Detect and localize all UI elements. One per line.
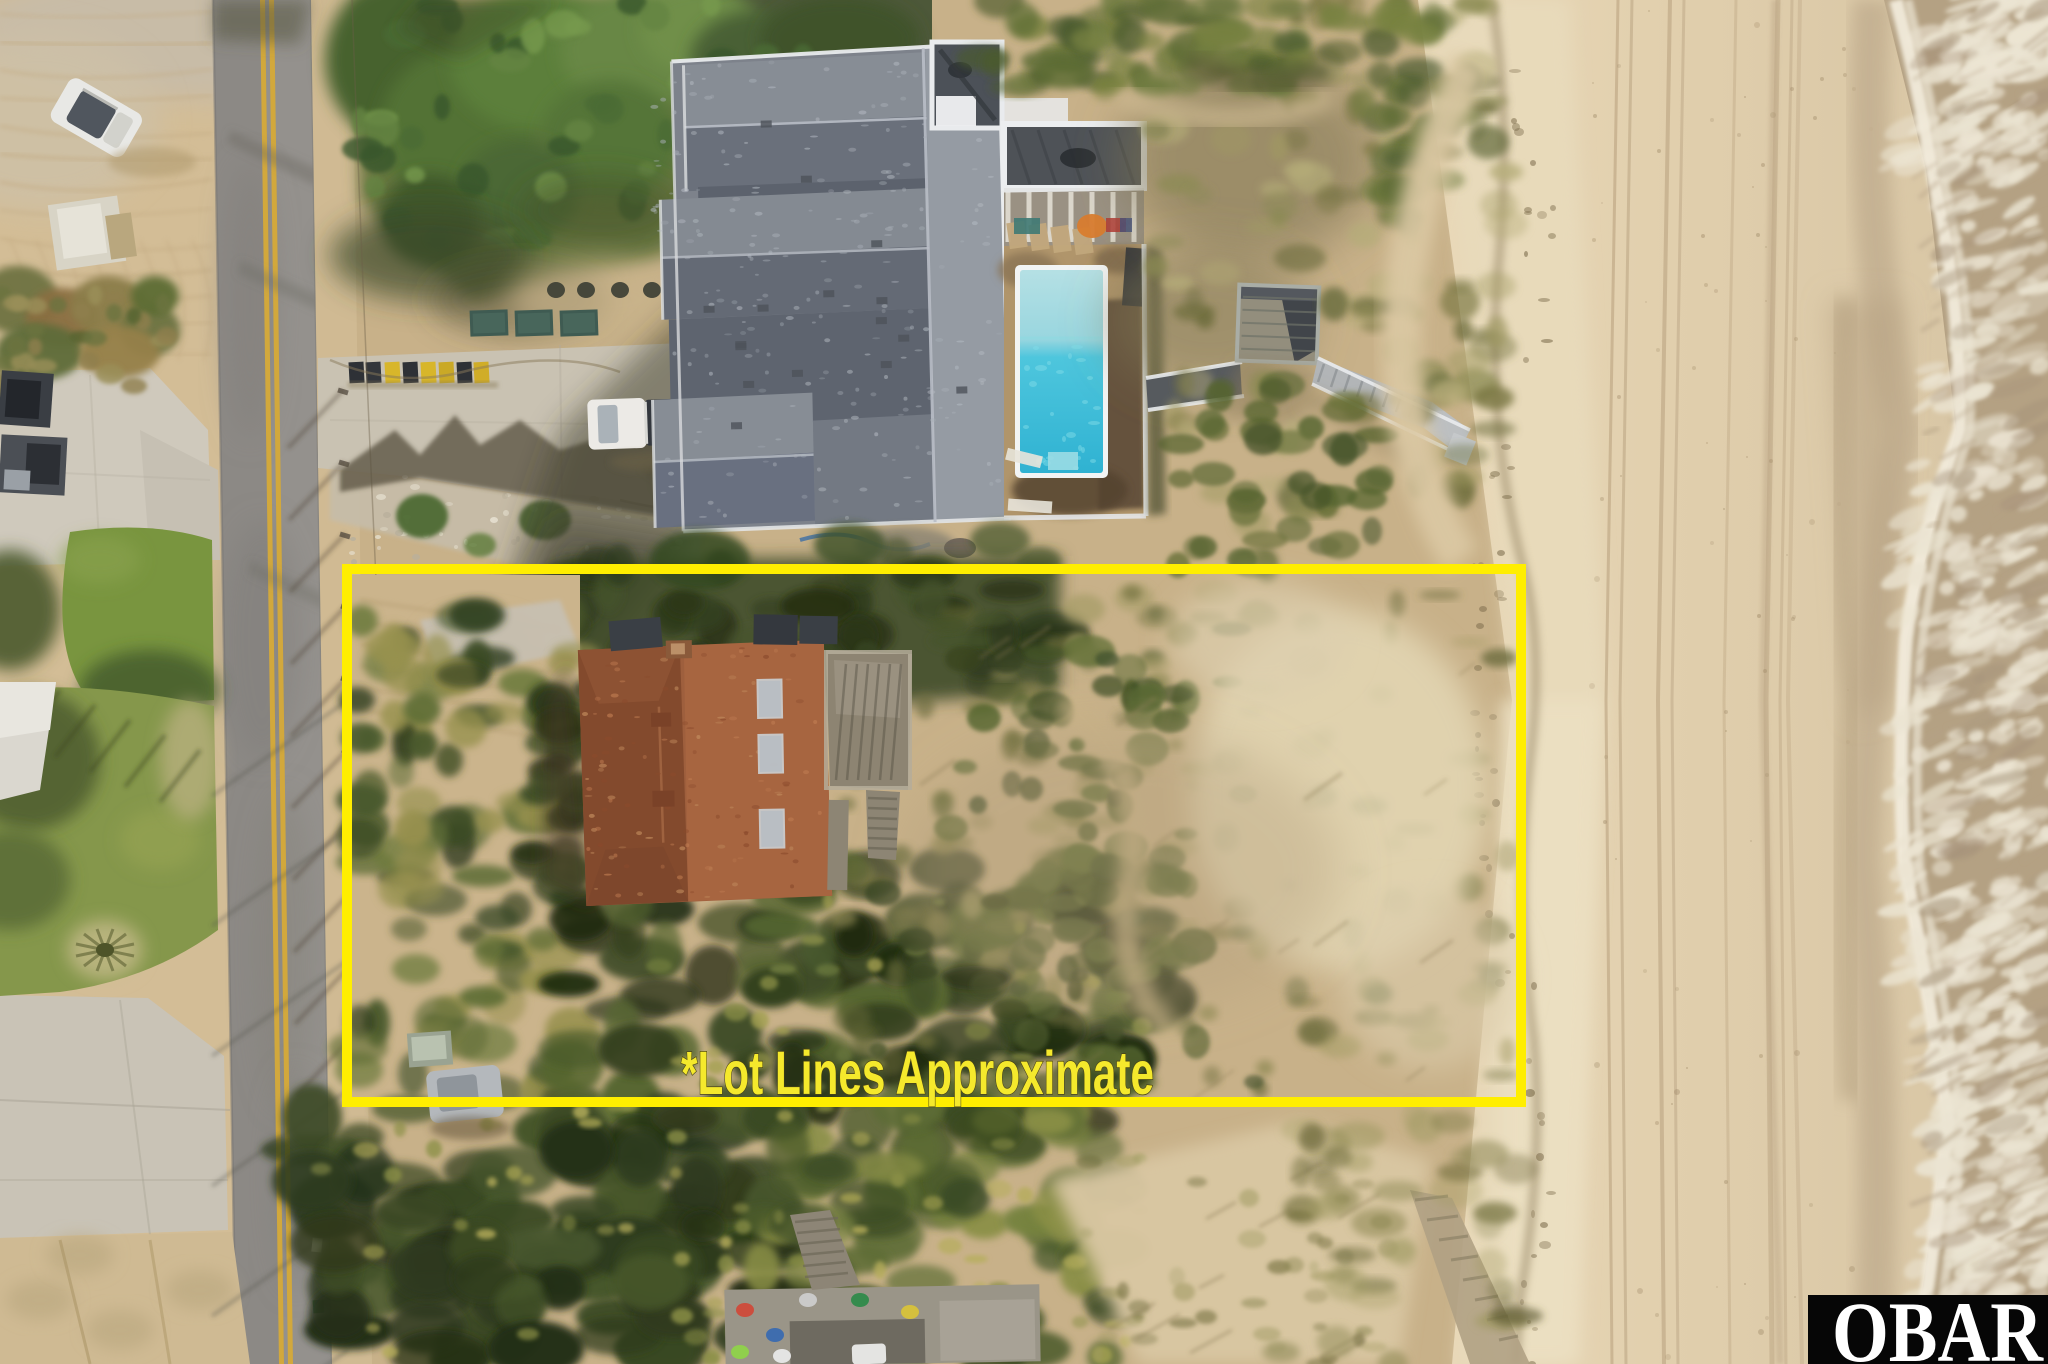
svg-text:OBAR: OBAR bbox=[1832, 1284, 2044, 1364]
svg-text:*Lot Lines Approximate: *Lot Lines Approximate bbox=[681, 1039, 1154, 1107]
